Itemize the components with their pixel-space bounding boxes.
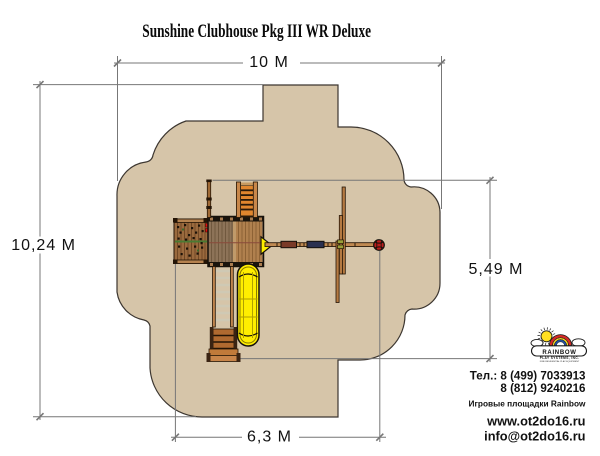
svg-text:6,3 М: 6,3 М [247, 429, 292, 446]
svg-text:www.ot2do16.ru: www.ot2do16.ru [486, 414, 585, 429]
svg-text:Sunshine Clubhouse Pkg III WR: Sunshine Clubhouse Pkg III WR Deluxe [142, 22, 371, 42]
svg-text:info@ot2do16.ru: info@ot2do16.ru [484, 429, 585, 444]
svg-text:10,24 М: 10,24 М [11, 237, 76, 254]
svg-text:PLAY SYSTEMS, INC.: PLAY SYSTEMS, INC. [540, 356, 580, 360]
svg-text:8 (812) 9240216: 8 (812) 9240216 [500, 382, 586, 395]
svg-text:Игровые площадки Rainbow: Игровые площадки Rainbow [468, 399, 586, 409]
svg-text:5,49 М: 5,49 М [469, 261, 524, 278]
svg-text:Тел.: 8 (499) 7033913: Тел.: 8 (499) 7033913 [470, 370, 586, 383]
svg-text:10 М: 10 М [249, 54, 289, 71]
svg-text:RAINBOW: RAINBOW [542, 350, 576, 356]
svg-text:FINE RESIDENTIAL PLAY EQUIPMEN: FINE RESIDENTIAL PLAY EQUIPMENT [540, 360, 580, 363]
